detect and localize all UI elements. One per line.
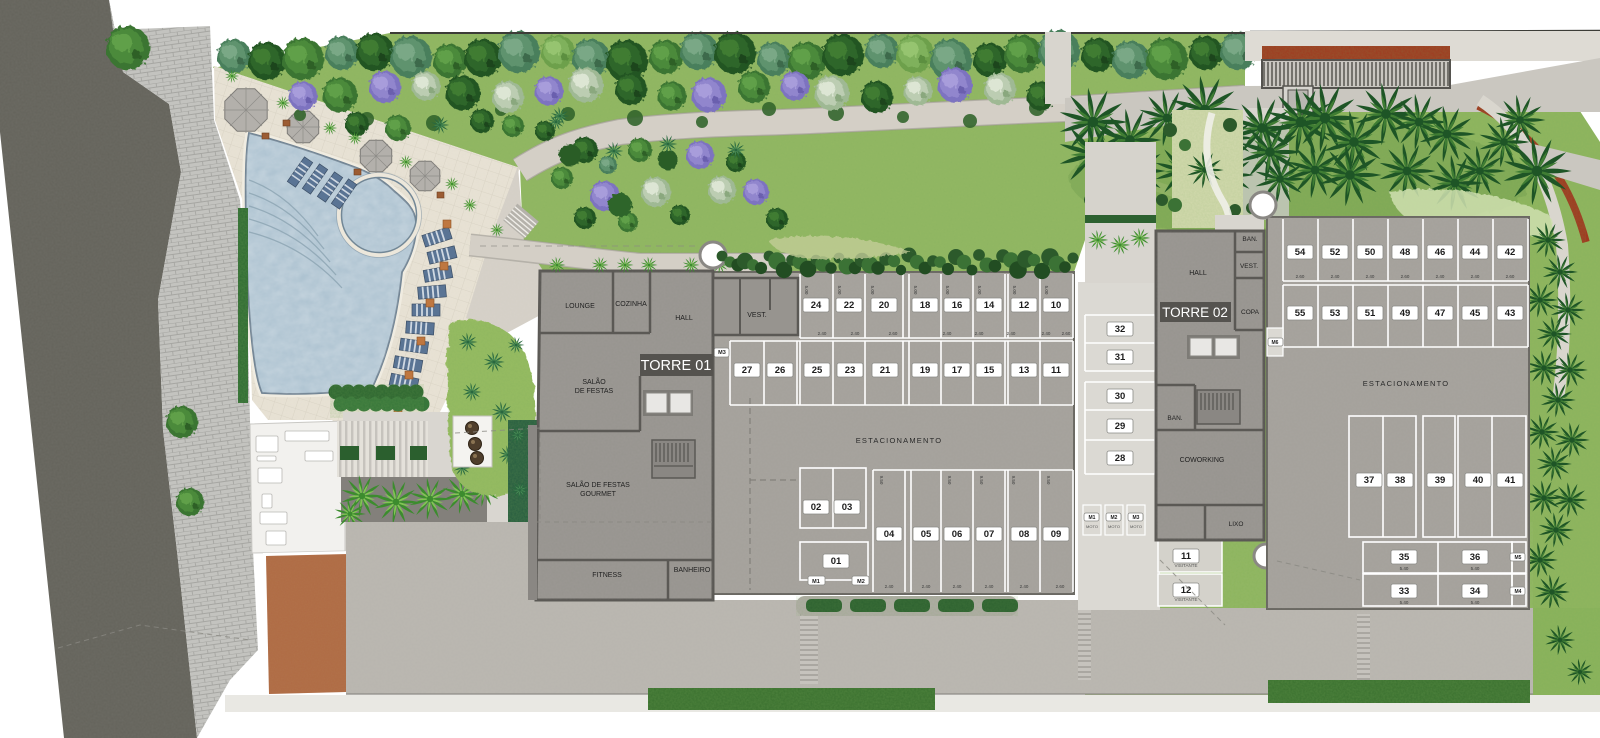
svg-text:2.40: 2.40 [922,584,931,589]
svg-text:30: 30 [1115,391,1126,402]
svg-text:2.40: 2.40 [1042,331,1051,336]
svg-text:02: 02 [811,502,822,513]
svg-text:M3: M3 [1133,515,1140,521]
svg-text:5.40: 5.40 [1400,566,1409,571]
svg-text:5.40: 5.40 [1400,600,1409,605]
svg-text:51: 51 [1365,308,1376,319]
svg-text:2.40: 2.40 [943,331,952,336]
svg-text:VISITANTE: VISITANTE [1175,563,1198,568]
svg-text:43: 43 [1505,308,1516,319]
svg-text:9.50: 9.50 [879,476,884,485]
svg-text:21: 21 [880,365,891,376]
svg-text:2.40: 2.40 [885,584,894,589]
svg-text:MOTO: MOTO [1130,524,1142,529]
svg-text:2.60: 2.60 [889,331,898,336]
svg-text:39: 39 [1435,475,1446,486]
svg-text:2.40: 2.40 [1007,331,1016,336]
svg-text:GOURMET: GOURMET [580,491,617,498]
svg-text:2.40: 2.40 [953,584,962,589]
svg-text:2.40: 2.40 [851,331,860,336]
svg-text:M4: M4 [1515,589,1522,595]
svg-text:42: 42 [1505,247,1516,258]
svg-text:10: 10 [1051,300,1062,311]
svg-text:MOTO: MOTO [1086,524,1098,529]
svg-text:2.60: 2.60 [1401,274,1410,279]
svg-text:22: 22 [844,300,855,311]
svg-text:SALÃO DE FESTAS: SALÃO DE FESTAS [566,480,630,489]
svg-text:07: 07 [984,529,995,540]
svg-text:06: 06 [952,529,963,540]
svg-text:16: 16 [952,300,963,311]
svg-text:M1: M1 [812,579,820,585]
svg-text:20: 20 [879,300,890,311]
svg-text:COWORKING: COWORKING [1180,457,1225,464]
svg-text:5.00: 5.00 [837,286,842,295]
svg-text:27: 27 [742,365,753,376]
svg-text:29: 29 [1115,421,1126,432]
svg-text:15: 15 [984,365,995,376]
svg-text:55: 55 [1295,308,1306,319]
svg-text:13: 13 [1019,365,1030,376]
svg-text:09: 09 [1051,529,1062,540]
svg-text:32: 32 [1115,324,1126,335]
svg-text:14: 14 [984,300,995,311]
svg-text:2.40: 2.40 [1020,584,1029,589]
svg-text:40: 40 [1473,475,1484,486]
svg-text:46: 46 [1435,247,1446,258]
svg-text:37: 37 [1364,475,1375,486]
svg-text:5.00: 5.00 [804,286,809,295]
svg-text:54: 54 [1295,247,1306,258]
svg-text:9.50: 9.50 [1046,476,1051,485]
svg-text:5.40: 5.40 [1471,566,1480,571]
svg-text:LIXO: LIXO [1229,521,1244,528]
svg-text:HALL: HALL [1189,270,1207,277]
svg-text:36: 36 [1470,552,1481,563]
svg-text:TORRE 02: TORRE 02 [1162,305,1228,320]
svg-text:VEST.: VEST. [747,312,767,319]
svg-text:TORRE 01: TORRE 01 [641,358,712,374]
svg-text:49: 49 [1400,308,1411,319]
svg-text:M3: M3 [718,350,726,356]
svg-text:5.00: 5.00 [913,286,918,295]
svg-text:52: 52 [1330,247,1341,258]
svg-text:ESTACIONAMENTO: ESTACIONAMENTO [1363,379,1450,388]
svg-text:2.40: 2.40 [1366,274,1375,279]
svg-text:33: 33 [1399,586,1410,597]
svg-text:53: 53 [1330,308,1341,319]
svg-text:08: 08 [1019,529,1030,540]
svg-text:11: 11 [1051,365,1062,376]
svg-text:BANHEIRO: BANHEIRO [674,567,711,574]
svg-text:2.40: 2.40 [1471,274,1480,279]
svg-text:03: 03 [842,502,853,513]
svg-text:41: 41 [1505,475,1516,486]
svg-text:45: 45 [1470,308,1481,319]
svg-text:2.40: 2.40 [1436,274,1445,279]
svg-text:5.00: 5.00 [1012,286,1017,295]
svg-text:BAN.: BAN. [1242,236,1257,243]
svg-text:9.50: 9.50 [1011,476,1016,485]
svg-text:2.40: 2.40 [985,584,994,589]
svg-text:12: 12 [1019,300,1030,311]
svg-text:DE FESTAS: DE FESTAS [575,388,614,395]
svg-text:FITNESS: FITNESS [592,572,622,579]
svg-text:23: 23 [845,365,856,376]
svg-text:SALÃO: SALÃO [582,377,606,386]
svg-text:2.60: 2.60 [1506,274,1515,279]
svg-text:ESTACIONAMENTO: ESTACIONAMENTO [856,436,943,445]
svg-text:44: 44 [1470,247,1481,258]
svg-text:38: 38 [1395,475,1406,486]
svg-text:05: 05 [921,529,932,540]
svg-text:28: 28 [1115,453,1126,464]
svg-text:5.00: 5.00 [1044,286,1049,295]
svg-text:2.60: 2.60 [1062,331,1071,336]
svg-text:M2: M2 [1111,515,1118,521]
svg-text:BAN.: BAN. [1167,415,1182,422]
svg-text:2.40: 2.40 [1331,274,1340,279]
svg-text:25: 25 [812,365,823,376]
svg-text:26: 26 [775,365,786,376]
svg-text:2.60: 2.60 [1056,584,1065,589]
svg-text:34: 34 [1470,586,1481,597]
svg-text:47: 47 [1435,308,1446,319]
svg-text:2.60: 2.60 [1296,274,1305,279]
svg-text:50: 50 [1365,247,1376,258]
svg-text:35: 35 [1399,552,1410,563]
svg-text:COZINHA: COZINHA [615,301,647,308]
svg-text:5.40: 5.40 [1471,600,1480,605]
svg-text:VISITANTE: VISITANTE [1175,597,1198,602]
svg-text:18: 18 [920,300,931,311]
svg-text:2.40: 2.40 [975,331,984,336]
svg-text:24: 24 [811,300,822,311]
svg-text:04: 04 [884,529,895,540]
svg-text:M1: M1 [1089,515,1096,521]
svg-text:M2: M2 [857,579,865,585]
svg-text:VEST.: VEST. [1240,263,1258,270]
svg-text:11: 11 [1181,551,1192,562]
svg-text:48: 48 [1400,247,1411,258]
svg-text:9.50: 9.50 [947,476,952,485]
svg-text:M6: M6 [1272,340,1279,346]
svg-text:COPA: COPA [1241,309,1260,316]
svg-text:19: 19 [920,365,931,376]
svg-text:31: 31 [1115,352,1126,363]
svg-text:5.00: 5.00 [870,286,875,295]
svg-text:M5: M5 [1515,555,1522,561]
svg-text:9.50: 9.50 [979,476,984,485]
svg-text:01: 01 [831,556,842,567]
svg-text:5.00: 5.00 [945,286,950,295]
svg-text:2.40: 2.40 [818,331,827,336]
svg-text:17: 17 [952,365,963,376]
svg-text:HALL: HALL [675,315,693,322]
svg-text:5.00: 5.00 [977,286,982,295]
svg-text:LOUNGE: LOUNGE [565,303,595,310]
svg-text:MOTO: MOTO [1108,524,1120,529]
